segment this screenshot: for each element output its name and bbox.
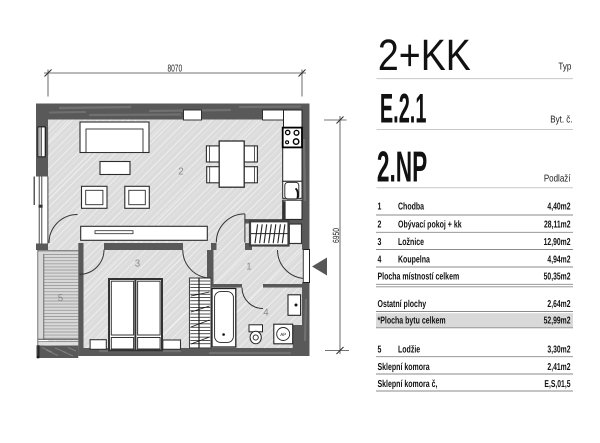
svg-text:Sklepní komora č,: Sklepní komora č,	[378, 379, 438, 390]
svg-text:Sklepní komora: Sklepní komora	[378, 362, 430, 373]
svg-text:3,30m2: 3,30m2	[547, 345, 570, 356]
svg-text:4: 4	[263, 308, 269, 319]
svg-text:4,40m2: 4,40m2	[547, 202, 570, 213]
svg-text:2,64m2: 2,64m2	[547, 299, 570, 310]
svg-text:28,11m2: 28,11m2	[544, 219, 571, 230]
svg-text:E.2.1: E.2.1	[380, 85, 427, 132]
svg-text:Chodba: Chodba	[398, 202, 424, 213]
svg-text:E,S,01,5: E,S,01,5	[544, 379, 570, 390]
svg-text:Podlaží: Podlaží	[544, 173, 571, 184]
svg-text:*Plocha bytu celkem: *Plocha bytu celkem	[378, 316, 446, 327]
svg-text:Ostatní plochy: Ostatní plochy	[378, 299, 427, 310]
svg-text:4,94m2: 4,94m2	[547, 254, 570, 265]
svg-text:3: 3	[378, 237, 382, 248]
svg-text:6950: 6950	[331, 228, 341, 243]
svg-text:2+KK: 2+KK	[378, 31, 471, 80]
svg-text:Lodžie: Lodžie	[398, 345, 420, 356]
svg-text:2: 2	[378, 219, 382, 230]
svg-text:1: 1	[378, 202, 382, 213]
svg-text:1: 1	[246, 262, 252, 273]
svg-text:52,99m2: 52,99m2	[544, 316, 571, 327]
svg-text:Plocha místností celkem: Plocha místností celkem	[378, 271, 460, 282]
svg-text:3: 3	[135, 259, 141, 270]
svg-text:2.NP: 2.NP	[377, 144, 427, 192]
svg-text:5: 5	[58, 293, 64, 304]
svg-text:4: 4	[378, 254, 382, 265]
svg-text:8070: 8070	[167, 63, 182, 74]
svg-text:Typ: Typ	[558, 62, 571, 73]
svg-text:2: 2	[178, 167, 184, 178]
svg-text:2,41m2: 2,41m2	[547, 362, 570, 373]
svg-text:50,35m2: 50,35m2	[544, 271, 571, 282]
svg-text:5: 5	[378, 345, 382, 356]
svg-text:Ložnice: Ložnice	[398, 237, 424, 248]
svg-text:Byt. č.: Byt. č.	[550, 115, 572, 126]
svg-text:Obývací pokoj + kk: Obývací pokoj + kk	[398, 219, 462, 230]
svg-text:12,90m2: 12,90m2	[544, 237, 571, 248]
svg-text:AP: AP	[280, 332, 286, 337]
svg-text:Koupelna: Koupelna	[398, 254, 430, 265]
